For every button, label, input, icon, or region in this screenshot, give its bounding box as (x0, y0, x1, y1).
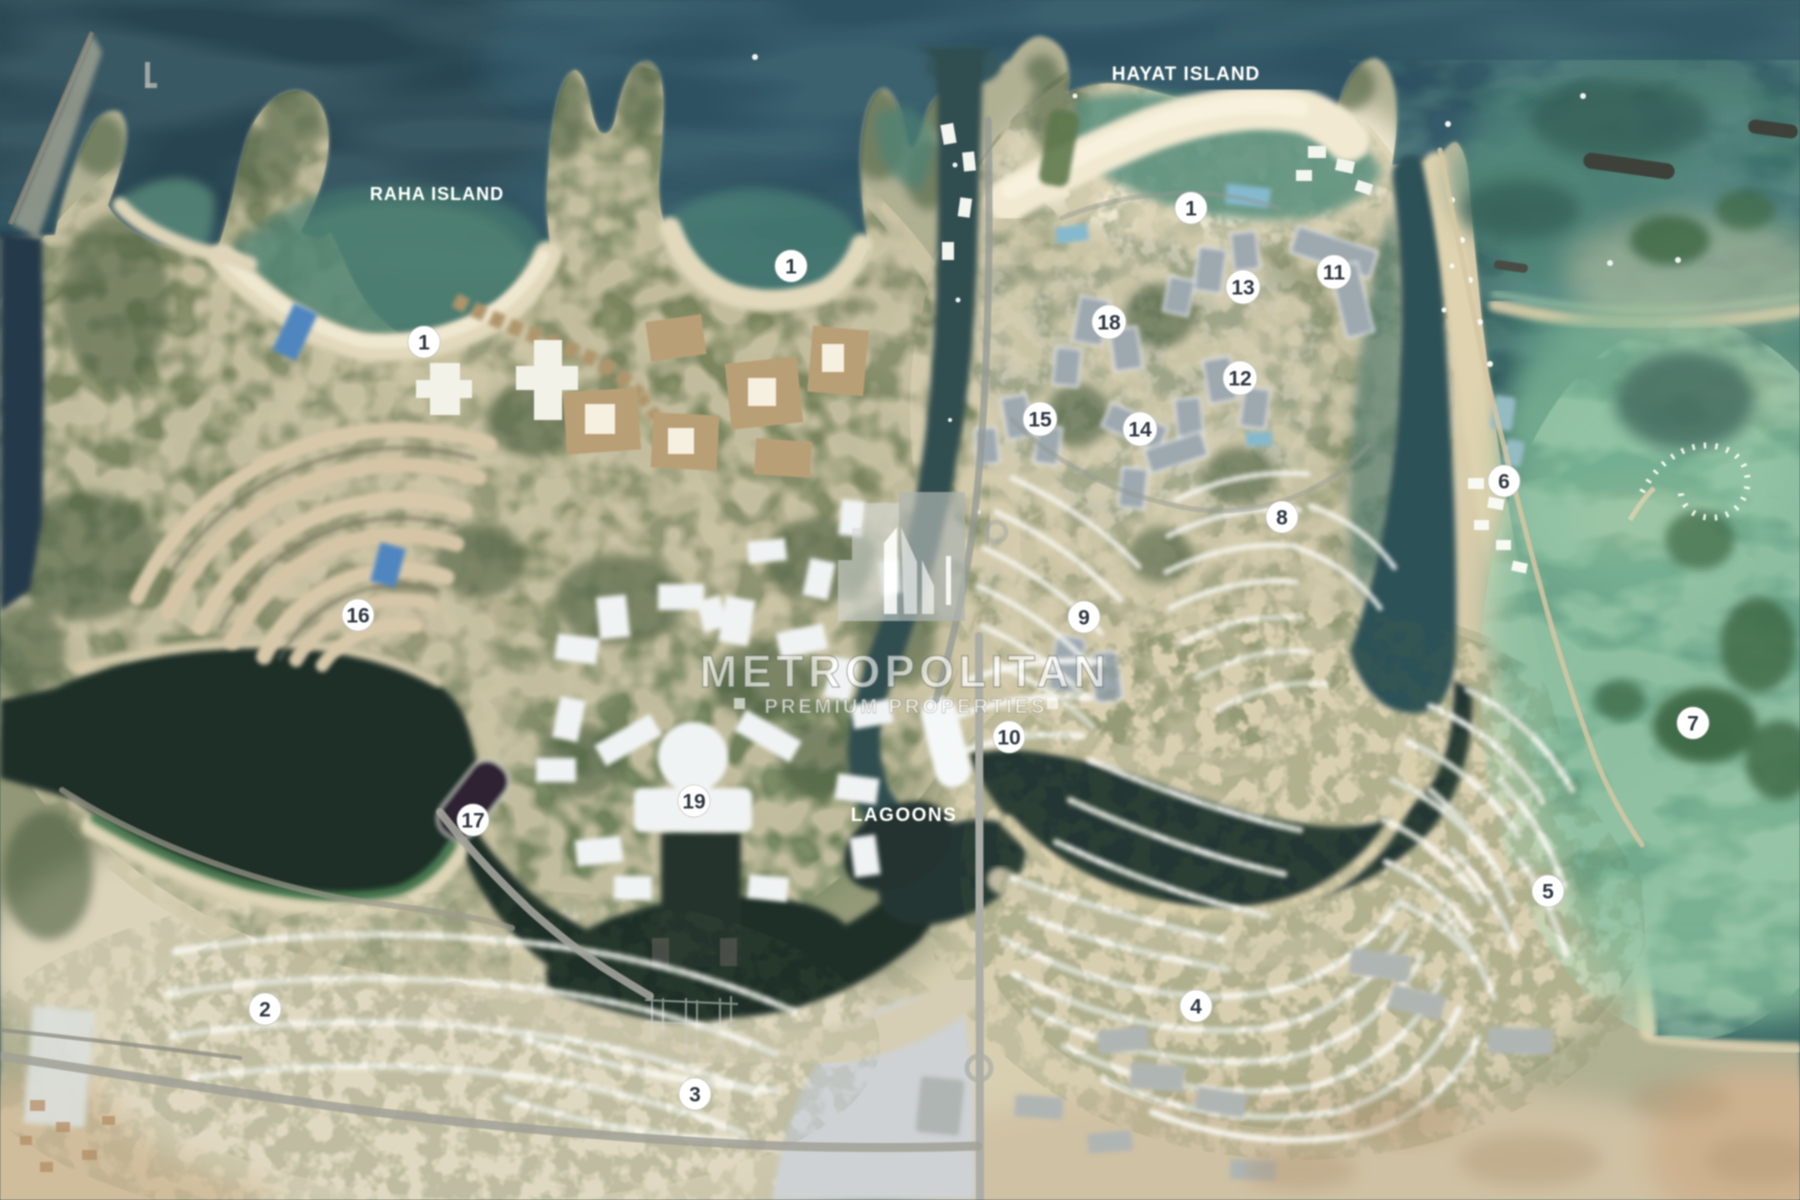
svg-text:13: 13 (1231, 277, 1254, 300)
svg-text:1: 1 (785, 256, 797, 279)
svg-text:19: 19 (682, 791, 705, 814)
svg-text:17: 17 (461, 810, 484, 833)
svg-text:9: 9 (1078, 607, 1090, 630)
svg-text:15: 15 (1028, 409, 1052, 432)
svg-text:7: 7 (1687, 713, 1699, 736)
svg-text:RAHA ISLAND: RAHA ISLAND (370, 184, 504, 204)
svg-text:PREMIUM PROPERTIES: PREMIUM PROPERTIES (765, 696, 1048, 718)
svg-text:1: 1 (1185, 198, 1197, 221)
svg-text:12: 12 (1228, 368, 1251, 391)
svg-text:4: 4 (1190, 996, 1202, 1019)
svg-text:3: 3 (689, 1084, 701, 1107)
svg-text:8: 8 (1276, 507, 1288, 530)
svg-text:HAYAT ISLAND: HAYAT ISLAND (1112, 64, 1261, 85)
svg-text:LAGOONS: LAGOONS (851, 805, 958, 826)
svg-text:METROPOLITAN: METROPOLITAN (700, 646, 1111, 697)
svg-text:2: 2 (259, 999, 271, 1022)
svg-text:6: 6 (1498, 471, 1510, 494)
svg-text:10: 10 (997, 727, 1020, 750)
svg-text:1: 1 (418, 332, 430, 355)
svg-text:11: 11 (1323, 262, 1346, 285)
svg-text:18: 18 (1097, 312, 1121, 335)
svg-text:14: 14 (1128, 419, 1152, 442)
svg-text:5: 5 (1542, 881, 1554, 904)
svg-text:16: 16 (346, 605, 369, 628)
